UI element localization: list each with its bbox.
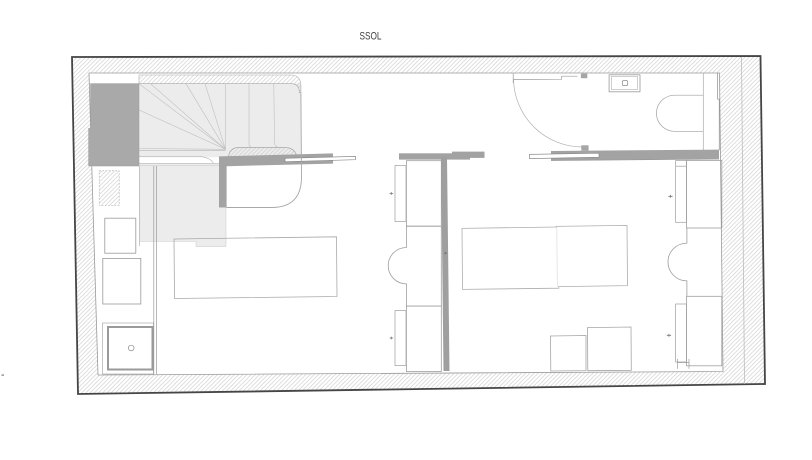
svg-text:SSOL: SSOL	[360, 30, 382, 42]
